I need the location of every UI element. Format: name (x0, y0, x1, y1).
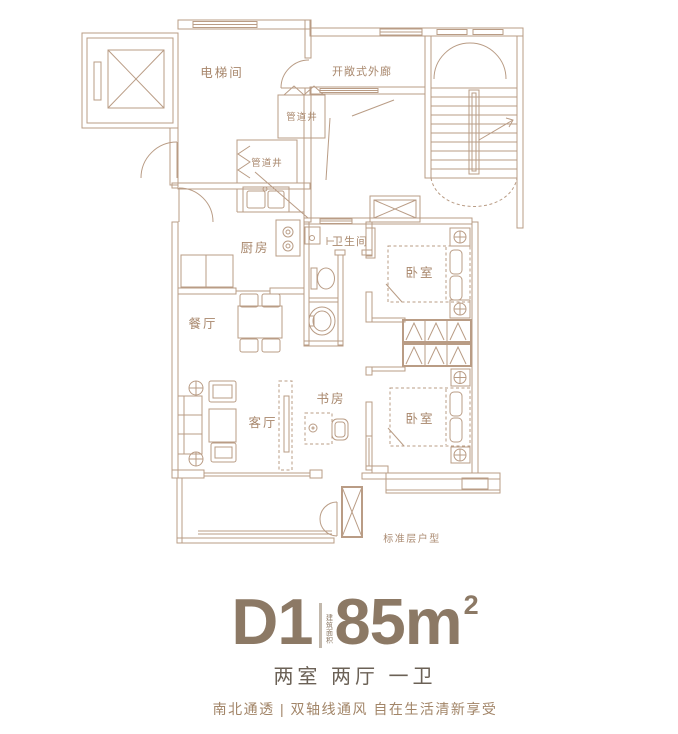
floor-plan: 电梯间 管道井 管道井 开敞式外廊 (0, 0, 678, 562)
floor-plan-container: 电梯间 管道井 管道井 开敞式外廊 (0, 0, 678, 562)
wardrobes (372, 320, 471, 371)
area-value: 85m (334, 595, 461, 650)
living-room: 客厅 (178, 381, 292, 470)
elevator-shaft (82, 33, 178, 128)
dining-label: 餐厅 (188, 316, 217, 331)
open-corridor-label: 开敞式外廊 (332, 64, 392, 78)
kitchen: 厨房 (178, 95, 311, 294)
balcony (172, 470, 500, 543)
elevator-hall-label: 电梯间 (200, 66, 244, 80)
unit-title: D1 建筑面积 85m 2 (16, 594, 678, 650)
pipe-shaft-top-label: 管道井 (286, 111, 318, 123)
layout-summary: 两室 两厅 一卫 (16, 660, 678, 689)
area-superscript: 2 (464, 594, 479, 617)
pipe-shaft-mid: 管道井 (237, 140, 297, 183)
bedroom-north: 卧室 (366, 222, 470, 322)
plan-caption: 标准层户型 (383, 532, 441, 545)
living-label: 客厅 (248, 415, 277, 430)
dining-room: 餐厅 (188, 294, 282, 352)
bedroom-south-label: 卧室 (405, 411, 434, 426)
open-corridor: 开敞式外廊 (310, 28, 523, 94)
bedroom-south: 卧室 (366, 367, 470, 473)
study: 书房 (305, 391, 348, 444)
entry-door (179, 188, 213, 222)
pipe-shaft-mid-label: 管道井 (251, 157, 283, 169)
kitchen-label: 厨房 (240, 240, 269, 255)
bedroom-north-label: 卧室 (405, 265, 434, 280)
area-note-vertical: 建筑面积 (325, 611, 332, 647)
staircase (425, 36, 523, 228)
unit-title-block: D1 建筑面积 85m 2 两室 两厅 一卫 南北通透 | 双轴线通风 自在生活… (16, 594, 678, 719)
tagline: 南北通透 | 双轴线通风 自在生活清新享受 (16, 699, 678, 719)
study-label: 书房 (316, 391, 345, 406)
unit-code: D1 (231, 595, 312, 650)
bathroom-label: 卫生间 (332, 234, 368, 248)
elevator-hall: 电梯间 (141, 20, 311, 185)
title-divider (319, 603, 322, 648)
